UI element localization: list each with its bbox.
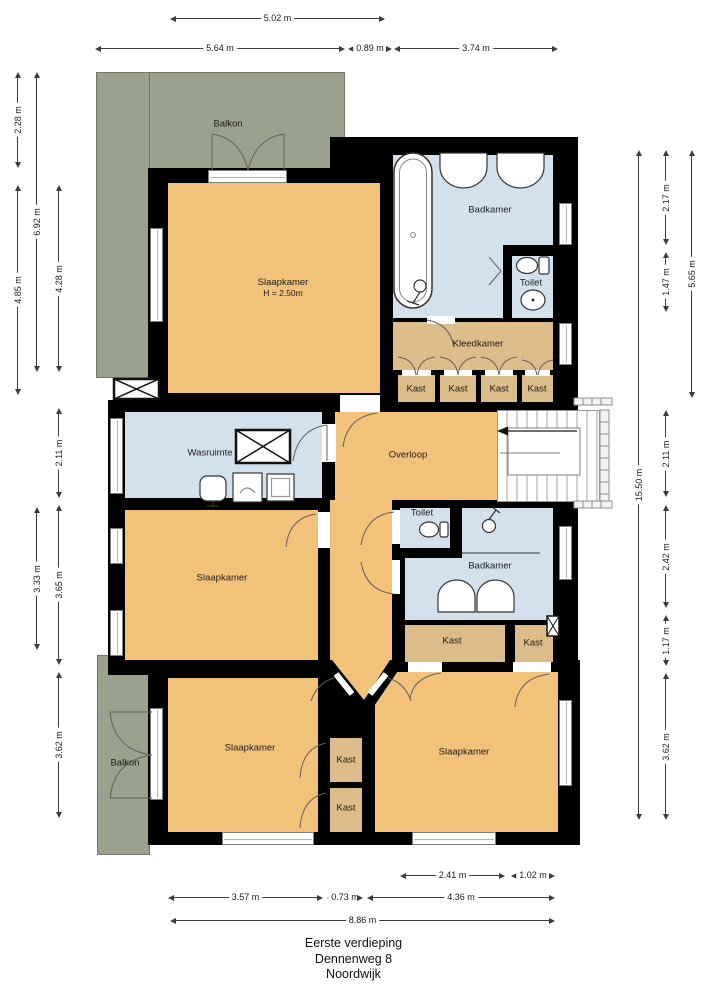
dim-left-365: 3.65 m	[54, 505, 63, 665]
plan-title-street: Dennenweg 8	[305, 952, 402, 968]
door-gap-slaapkamer-tl	[340, 395, 380, 412]
label-toilet-tr: Toilet	[520, 278, 542, 289]
label-kast-mid-left: Kast	[442, 636, 461, 647]
label-kast-mid-right: Kast	[523, 638, 542, 649]
window-slaapkamer-ml-left-1	[110, 528, 123, 564]
dim-right-217: 2.17 m	[661, 150, 670, 245]
room-badkamer-top-right	[393, 155, 553, 318]
room-slaapkamer-bottom-left	[168, 678, 318, 832]
door-gap-slaapkamer-ml	[318, 512, 330, 548]
window-slaapkamer-br-right	[559, 700, 572, 786]
dim-left-692: 6.92 m	[32, 72, 41, 372]
label-slaapkamer-br: Slaapkamer	[439, 747, 490, 758]
wall-toilet-top-b	[503, 256, 512, 318]
label-badkamer-mid: Badkamer	[468, 561, 511, 572]
label-kast-3: Kast	[489, 384, 508, 395]
door-gap-wasruimte	[322, 424, 336, 462]
room-slaapkamer-mid-left	[125, 510, 318, 660]
dim-right-242: 2.42 m	[661, 505, 670, 608]
label-balkon-top: Balkon	[213, 119, 242, 130]
dim-bottom-436: 4.36 m	[367, 893, 555, 902]
dim-right-565: 5.65 m	[687, 150, 696, 398]
dim-right-147: 1.47 m	[661, 252, 670, 312]
door-gap-kastrow-4	[525, 370, 550, 376]
label-kast-bottom-1: Kast	[336, 755, 355, 766]
door-gap-toilet-mid	[392, 510, 400, 544]
dim-top-2: 5.64 m	[95, 44, 345, 53]
dim-right-1550: 15.50 m	[634, 150, 643, 820]
dim-top-1: 5.02 m	[170, 14, 385, 23]
room-badkamer-mid-b	[405, 558, 462, 620]
label-kast-bottom-2: Kast	[336, 803, 355, 814]
label-slaapkamer-ml: Slaapkamer	[197, 573, 248, 584]
label-wasruimte: Wasruimte	[187, 448, 232, 459]
window-badkamer-tr-right	[559, 203, 572, 245]
dim-bottom-073: 0.73 m	[327, 893, 363, 902]
window-badkamer-mid-right	[559, 526, 572, 580]
plan-title-floor: Eerste verdieping	[305, 936, 402, 952]
dim-left-228: 2.28 m	[13, 72, 22, 168]
floor-plan-canvas: 5.02 m 5.64 m 0.89 m 3.74 m 2.28 m 4.85 …	[0, 0, 707, 1000]
label-slaapkamer-tl-name: Slaapkamer	[258, 277, 309, 288]
label-slaapkamer-tl: Slaapkamer H = 2.50m	[258, 277, 309, 299]
dim-top-4: 3.74 m	[394, 44, 558, 53]
dim-left-211: 2.11 m	[54, 408, 63, 498]
label-kast-1: Kast	[406, 384, 425, 395]
door-gap-kleedkamer	[427, 316, 455, 324]
dim-left-362: 3.62 m	[54, 672, 63, 818]
dim-top-3: 0.89 m	[348, 44, 392, 53]
label-toilet-mid: Toilet	[411, 508, 433, 519]
door-gap-kastrow-2	[444, 370, 472, 376]
label-badkamer-tr: Badkamer	[468, 205, 511, 216]
window-balcony-top-door	[208, 170, 287, 183]
label-overloop: Overloop	[389, 450, 428, 461]
label-balkon-bottom: Balkon	[110, 758, 139, 769]
dim-left-485: 4.85 m	[13, 185, 22, 395]
dim-bottom-357: 3.57 m	[168, 893, 323, 902]
dim-bottom-886: 8.86 m	[170, 916, 555, 925]
room-corridor	[330, 500, 392, 662]
door-gap-badkamer-mid	[392, 560, 400, 594]
door-gap-kastrow-3	[485, 370, 513, 376]
dim-left-428: 4.28 m	[54, 185, 63, 372]
door-gap-kast-mid-left	[408, 662, 442, 672]
label-slaapkamer-tl-height: H = 2.50m	[258, 288, 309, 299]
window-kleedkamer-right	[559, 323, 572, 365]
dim-right-117: 1.17 m	[661, 615, 670, 666]
label-kast-2: Kast	[448, 384, 467, 395]
window-slaapkamer-ml-left-2	[110, 610, 123, 656]
window-wasruimte-left	[110, 418, 123, 494]
dim-right-362: 3.62 m	[661, 673, 670, 820]
dim-right-211: 2.11 m	[661, 410, 670, 497]
label-kast-4: Kast	[527, 384, 546, 395]
stairwell	[497, 410, 600, 502]
label-slaapkamer-bl: Slaapkamer	[225, 743, 276, 754]
wall-toilet-top-a	[503, 245, 553, 256]
label-kleedkamer: Kleedkamer	[453, 339, 504, 350]
balcony-bottom	[97, 655, 150, 855]
door-gap-kastrow-1	[402, 370, 431, 376]
window-bottom-left	[222, 832, 314, 845]
plan-title-city: Noordwijk	[305, 967, 402, 983]
window-balcony-bottom-door	[150, 708, 163, 800]
plan-title: Eerste verdieping Dennenweg 8 Noordwijk	[305, 936, 402, 983]
door-gap-kast-mid-right	[513, 662, 551, 672]
window-bottom-right	[412, 832, 496, 845]
dim-bottom-102: 1.02 m	[511, 871, 555, 880]
dim-left-333: 3.33 m	[32, 507, 41, 650]
balcony-top-side	[96, 72, 150, 378]
dim-bottom-241: 2.41 m	[400, 871, 505, 880]
window-slaapkamer-tl-left	[150, 228, 163, 322]
